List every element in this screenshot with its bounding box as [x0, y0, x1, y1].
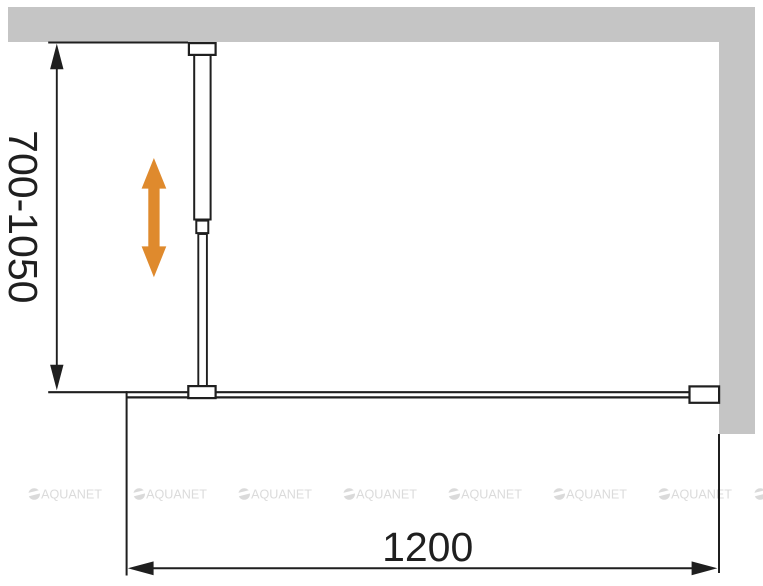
svg-text:AQUANET: AQUANET — [461, 488, 522, 502]
svg-text:700-1050: 700-1050 — [0, 130, 46, 303]
svg-text:AQUANET: AQUANET — [566, 488, 627, 502]
svg-text:AQUANET: AQUANET — [671, 488, 732, 502]
svg-text:AQUANET: AQUANET — [251, 488, 312, 502]
svg-text:1200: 1200 — [382, 524, 473, 570]
svg-text:AQUANET: AQUANET — [146, 488, 207, 502]
svg-text:AQUANET: AQUANET — [356, 488, 417, 502]
svg-text:AQUANET: AQUANET — [41, 488, 102, 502]
